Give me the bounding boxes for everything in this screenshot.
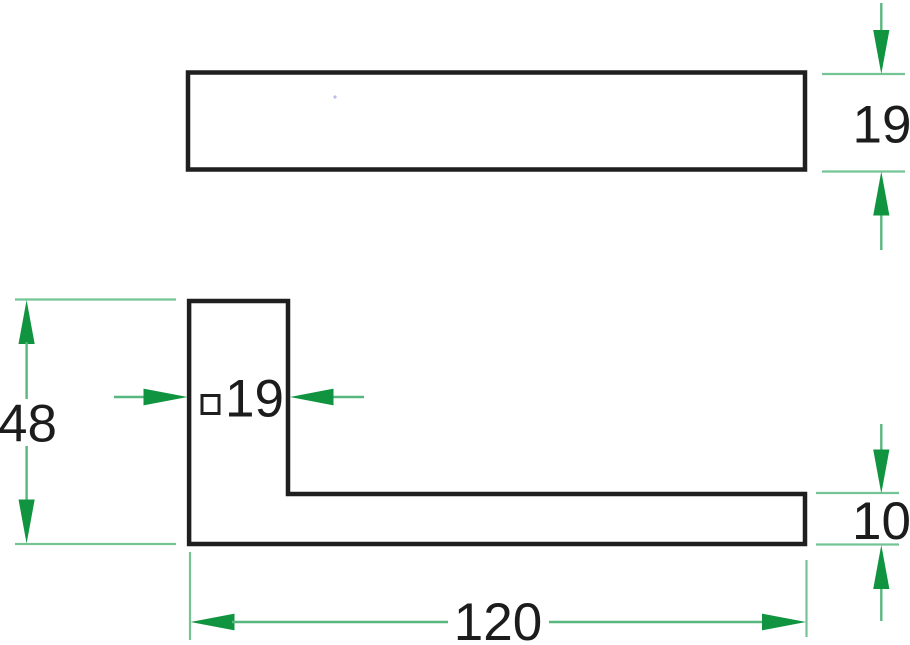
svg-text:19: 19 (853, 96, 910, 155)
svg-text:48: 48 (0, 394, 57, 453)
svg-text:10: 10 (852, 492, 910, 551)
svg-text:19: 19 (225, 370, 284, 429)
svg-text:120: 120 (454, 593, 542, 645)
